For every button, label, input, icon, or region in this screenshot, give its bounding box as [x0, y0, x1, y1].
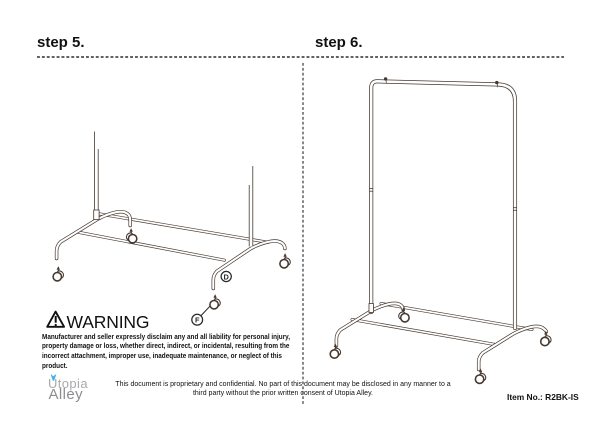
svg-text:F: F — [195, 315, 200, 324]
svg-text:D: D — [224, 272, 230, 281]
